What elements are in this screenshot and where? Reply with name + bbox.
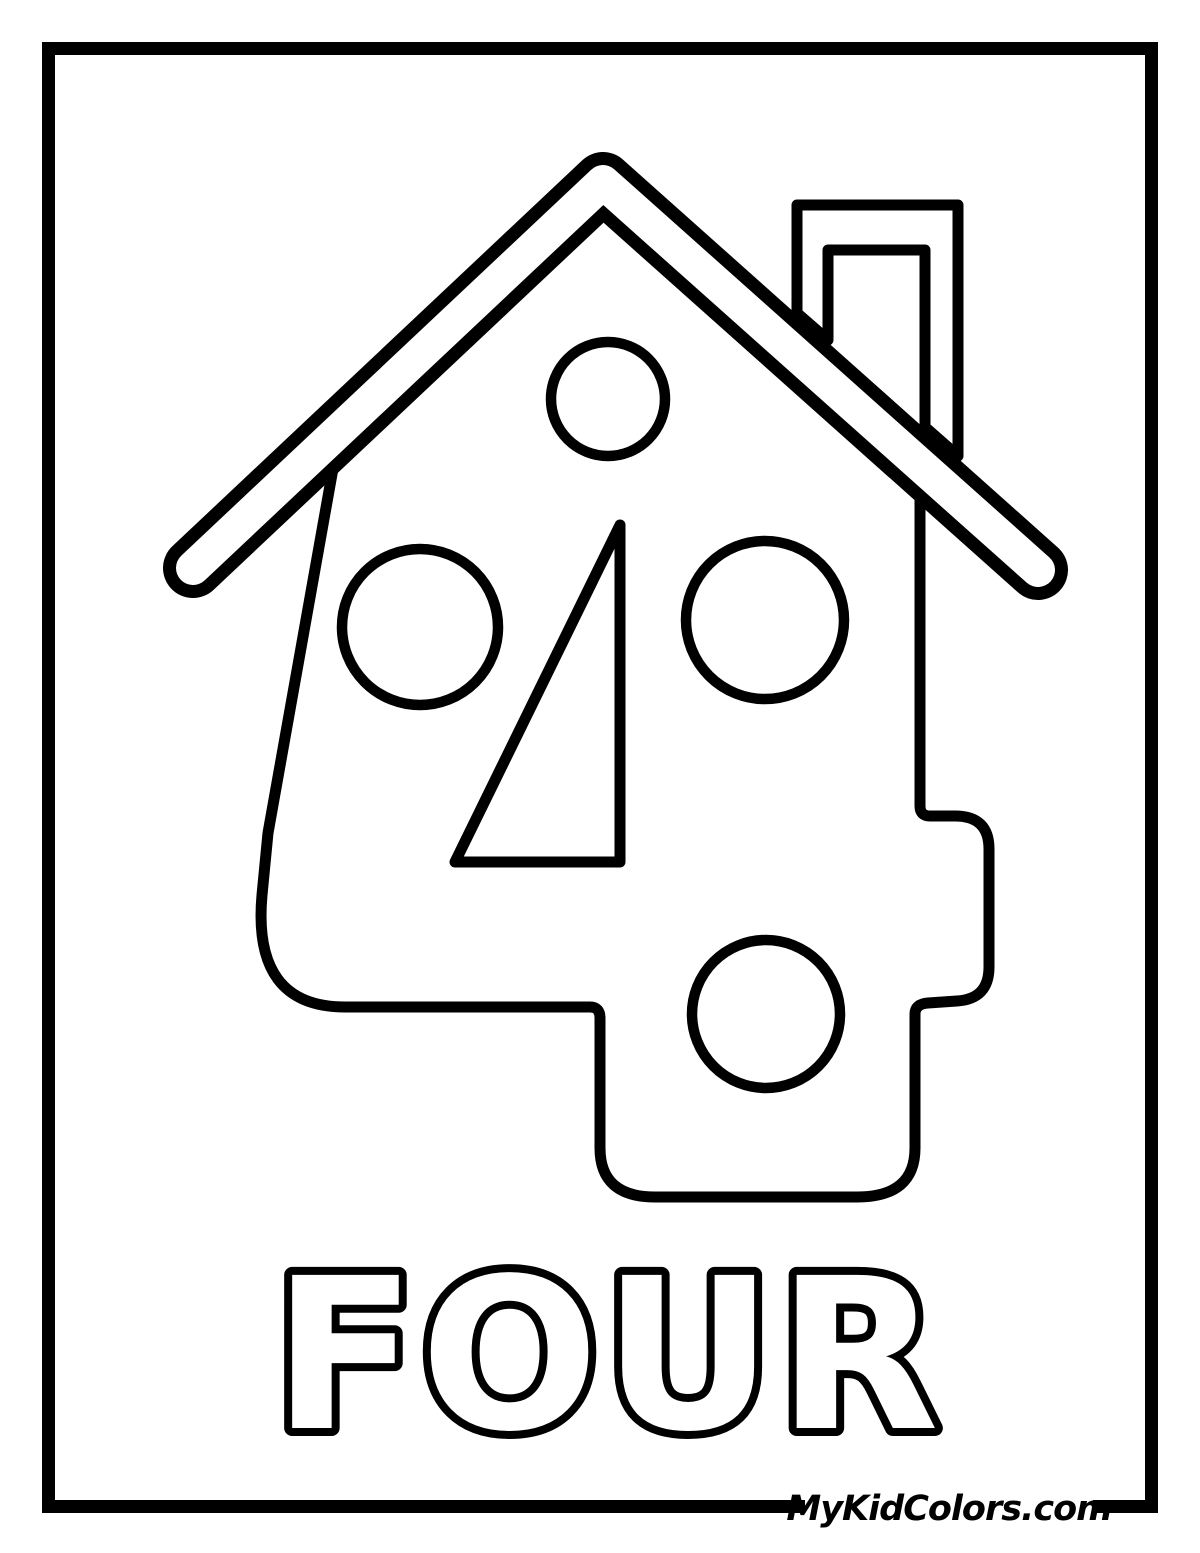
dot-circle-right bbox=[686, 541, 844, 699]
dot-circle-left bbox=[342, 549, 498, 705]
word-label: FOUR bbox=[273, 1233, 943, 1478]
coloring-page: FOUR MyKidColors.com bbox=[0, 0, 1200, 1553]
watermark-text: MyKidColors.com bbox=[786, 1489, 1111, 1529]
coloring-illustration: FOUR MyKidColors.com bbox=[0, 0, 1200, 1553]
dot-circle-attic bbox=[551, 342, 665, 456]
dot-circle-bottom bbox=[692, 940, 840, 1088]
